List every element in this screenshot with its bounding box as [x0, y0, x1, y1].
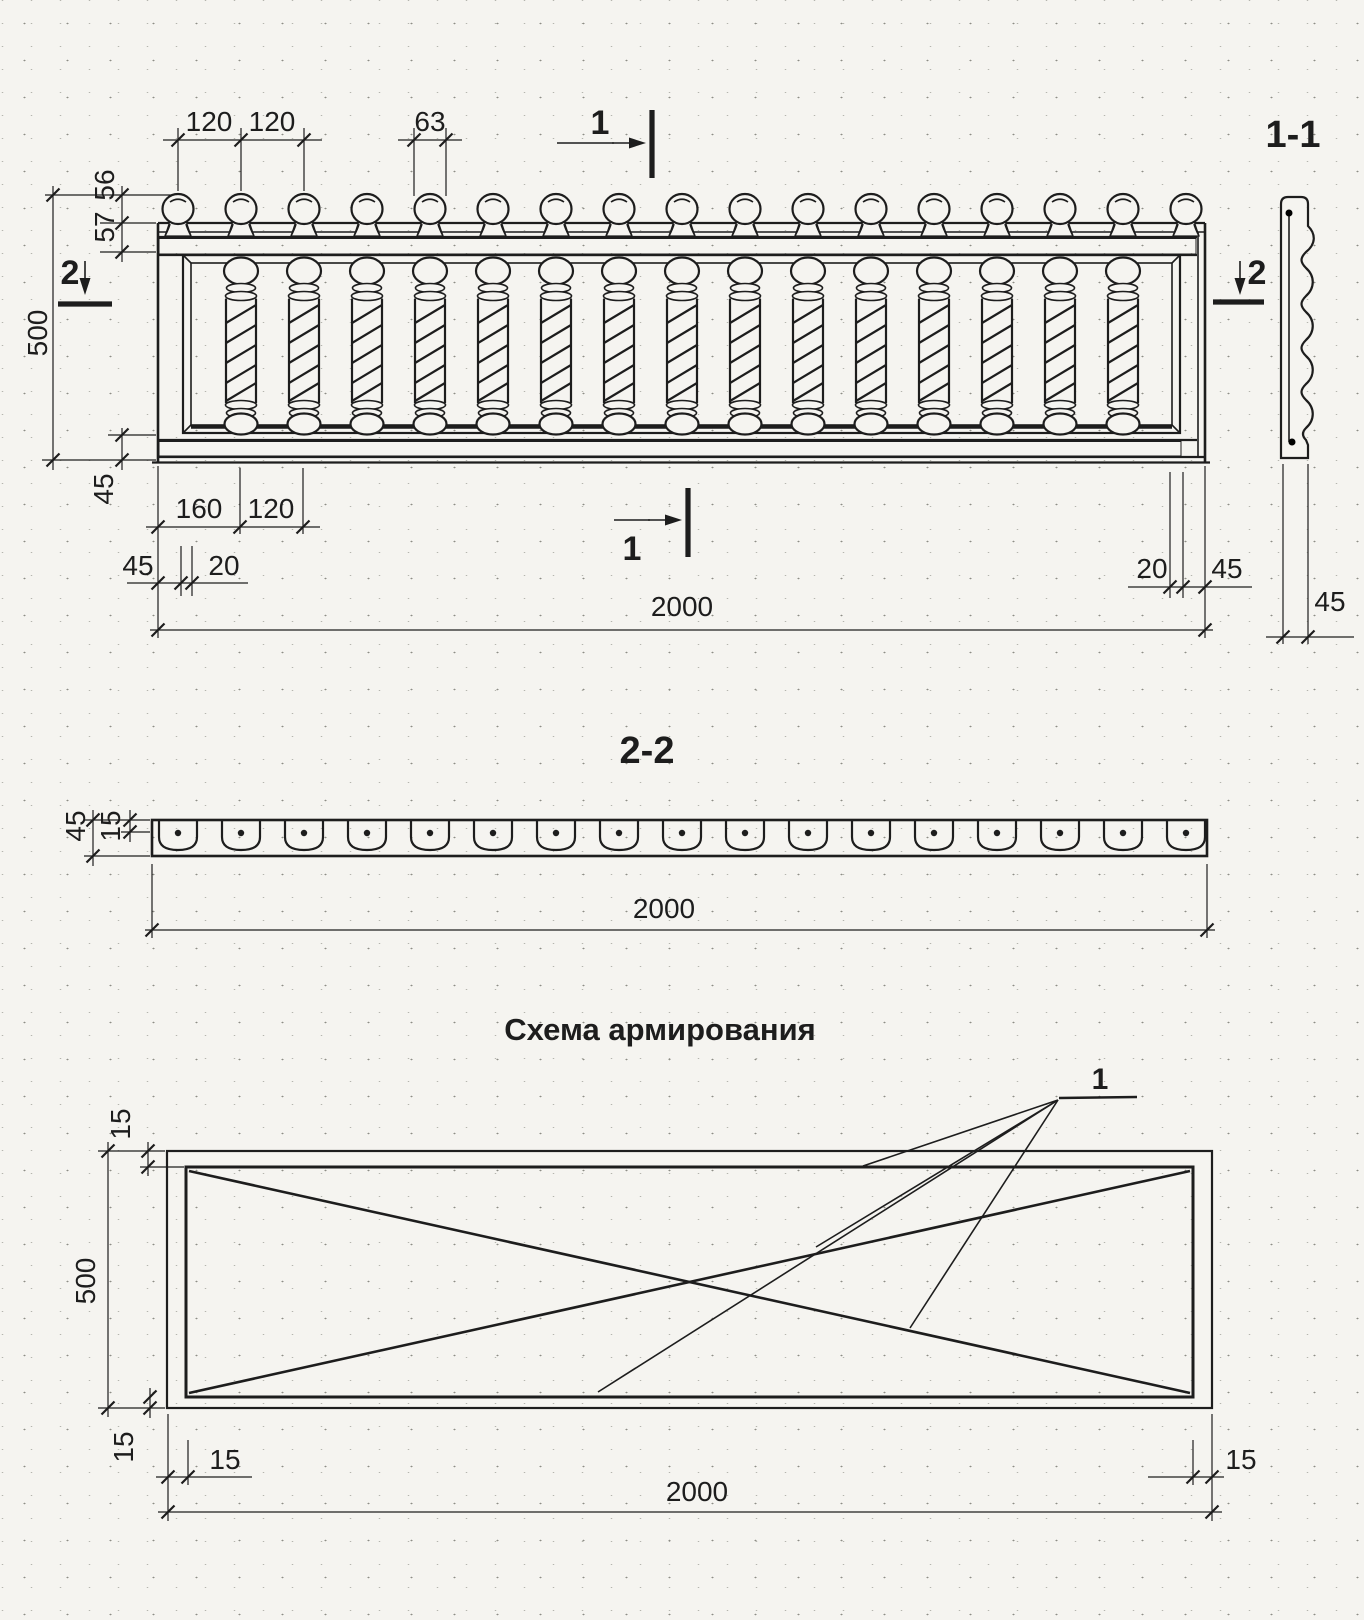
section-mark-label: 1: [591, 104, 610, 142]
baluster: [1106, 258, 1140, 435]
section-cut-2-left: 2: [58, 254, 112, 304]
section-mark-label: 1: [623, 530, 642, 568]
section-cell: [789, 821, 827, 850]
section-cut-1-top: 1: [557, 104, 652, 178]
baluster: [728, 258, 762, 435]
section-cell: [222, 821, 260, 850]
section-1-1-dimension: 45: [1266, 464, 1354, 644]
knob-row: [163, 194, 1202, 236]
elevation-left-dimensions: 56 57 500 45: [22, 169, 172, 504]
dim-label: 160: [176, 493, 223, 524]
dim-label: 2000: [666, 1476, 728, 1507]
dim-label: 45: [1314, 586, 1345, 617]
dim-label: 500: [22, 310, 53, 357]
knob: [1108, 194, 1139, 236]
dim-label: 120: [249, 106, 296, 137]
knob: [541, 194, 572, 236]
dim-label: 120: [248, 493, 295, 524]
balustrade-technical-drawing: 120 120 63 56 57 500 45: [0, 0, 1364, 1620]
dim-label: 45: [122, 550, 153, 581]
knob: [289, 194, 320, 236]
section-cell: [285, 821, 323, 850]
knob: [919, 194, 950, 236]
dim-label: 120: [186, 106, 233, 137]
baluster: [980, 258, 1014, 435]
dim-label: 15: [1225, 1444, 1256, 1475]
elevation-width-dimension: 2000: [150, 591, 1213, 630]
section-title: 2-2: [620, 730, 675, 772]
knob: [667, 194, 698, 236]
baluster-row: [224, 258, 1140, 435]
section-cell: [726, 821, 764, 850]
dim-label: 15: [95, 810, 126, 841]
section-cut-2-right: 2: [1213, 254, 1266, 302]
knob: [226, 194, 257, 236]
dim-label: 63: [414, 106, 445, 137]
baluster: [224, 258, 258, 435]
section-cell: [1104, 821, 1142, 850]
knob: [856, 194, 887, 236]
section-cut-1-bottom: 1: [614, 488, 688, 568]
baluster: [350, 258, 384, 435]
section-cell: [663, 821, 701, 850]
section-cell: [600, 821, 638, 850]
elevation-top-dimensions: 120 120 63: [163, 106, 462, 196]
dim-label: 56: [89, 169, 120, 200]
dim-label: 45: [1211, 553, 1242, 584]
baluster: [602, 258, 636, 435]
knob: [1171, 194, 1202, 236]
dim-label: 20: [208, 550, 239, 581]
callout-1: 1: [598, 1063, 1137, 1392]
dim-label: 20: [1136, 553, 1167, 584]
baluster: [413, 258, 447, 435]
baluster: [791, 258, 825, 435]
reinforcement-dimensions: 15 500 15 15 15 2000: [70, 1108, 1257, 1521]
knob: [982, 194, 1013, 236]
baluster: [1043, 258, 1077, 435]
knob: [352, 194, 383, 236]
reinforcement-view: Схема армирования 1 15 500 15: [70, 1012, 1257, 1521]
section-cell: [1167, 821, 1205, 850]
section-cell: [411, 821, 449, 850]
section-cell: [348, 821, 386, 850]
section-mark-label: 2: [1248, 254, 1267, 292]
knob: [415, 194, 446, 236]
baluster: [917, 258, 951, 435]
callout-label: 1: [1092, 1063, 1109, 1096]
section-2-2-view: 2-2 45 15 2000: [60, 730, 1215, 938]
baluster: [539, 258, 573, 435]
dim-label: 45: [88, 473, 119, 504]
dim-label: 500: [70, 1258, 101, 1305]
section-cell: [1041, 821, 1079, 850]
elevation-bottom-left-dimensions: 160 120 45 20: [122, 466, 320, 638]
elevation-bottom-right-dimensions: 20 45: [1128, 466, 1252, 638]
knob: [793, 194, 824, 236]
dim-label: 15: [209, 1444, 240, 1475]
baluster: [665, 258, 699, 435]
baluster: [476, 258, 510, 435]
section-1-1-view: 1-1 45: [1266, 114, 1354, 644]
knob: [730, 194, 761, 236]
dim-label: 2000: [651, 591, 713, 622]
dim-label: 57: [89, 211, 120, 242]
dim-label: 15: [105, 1108, 136, 1139]
section-cell: [159, 821, 197, 850]
section-cell: [852, 821, 890, 850]
baluster: [854, 258, 888, 435]
dim-label: 15: [108, 1431, 139, 1462]
elevation-view: 120 120 63 56 57 500 45: [22, 104, 1266, 638]
knob: [1045, 194, 1076, 236]
section-cell: [537, 821, 575, 850]
section-cell: [915, 821, 953, 850]
reinforcement-title: Схема армирования: [504, 1012, 815, 1047]
section-title: 1-1: [1266, 114, 1321, 156]
dim-label: 2000: [633, 893, 695, 924]
section-cell: [978, 821, 1016, 850]
section-mark-label: 2: [61, 254, 80, 292]
section-cell: [474, 821, 512, 850]
knob: [163, 194, 194, 236]
knob: [604, 194, 635, 236]
baluster: [287, 258, 321, 435]
baluster-section-row: [159, 821, 1205, 850]
knob: [478, 194, 509, 236]
